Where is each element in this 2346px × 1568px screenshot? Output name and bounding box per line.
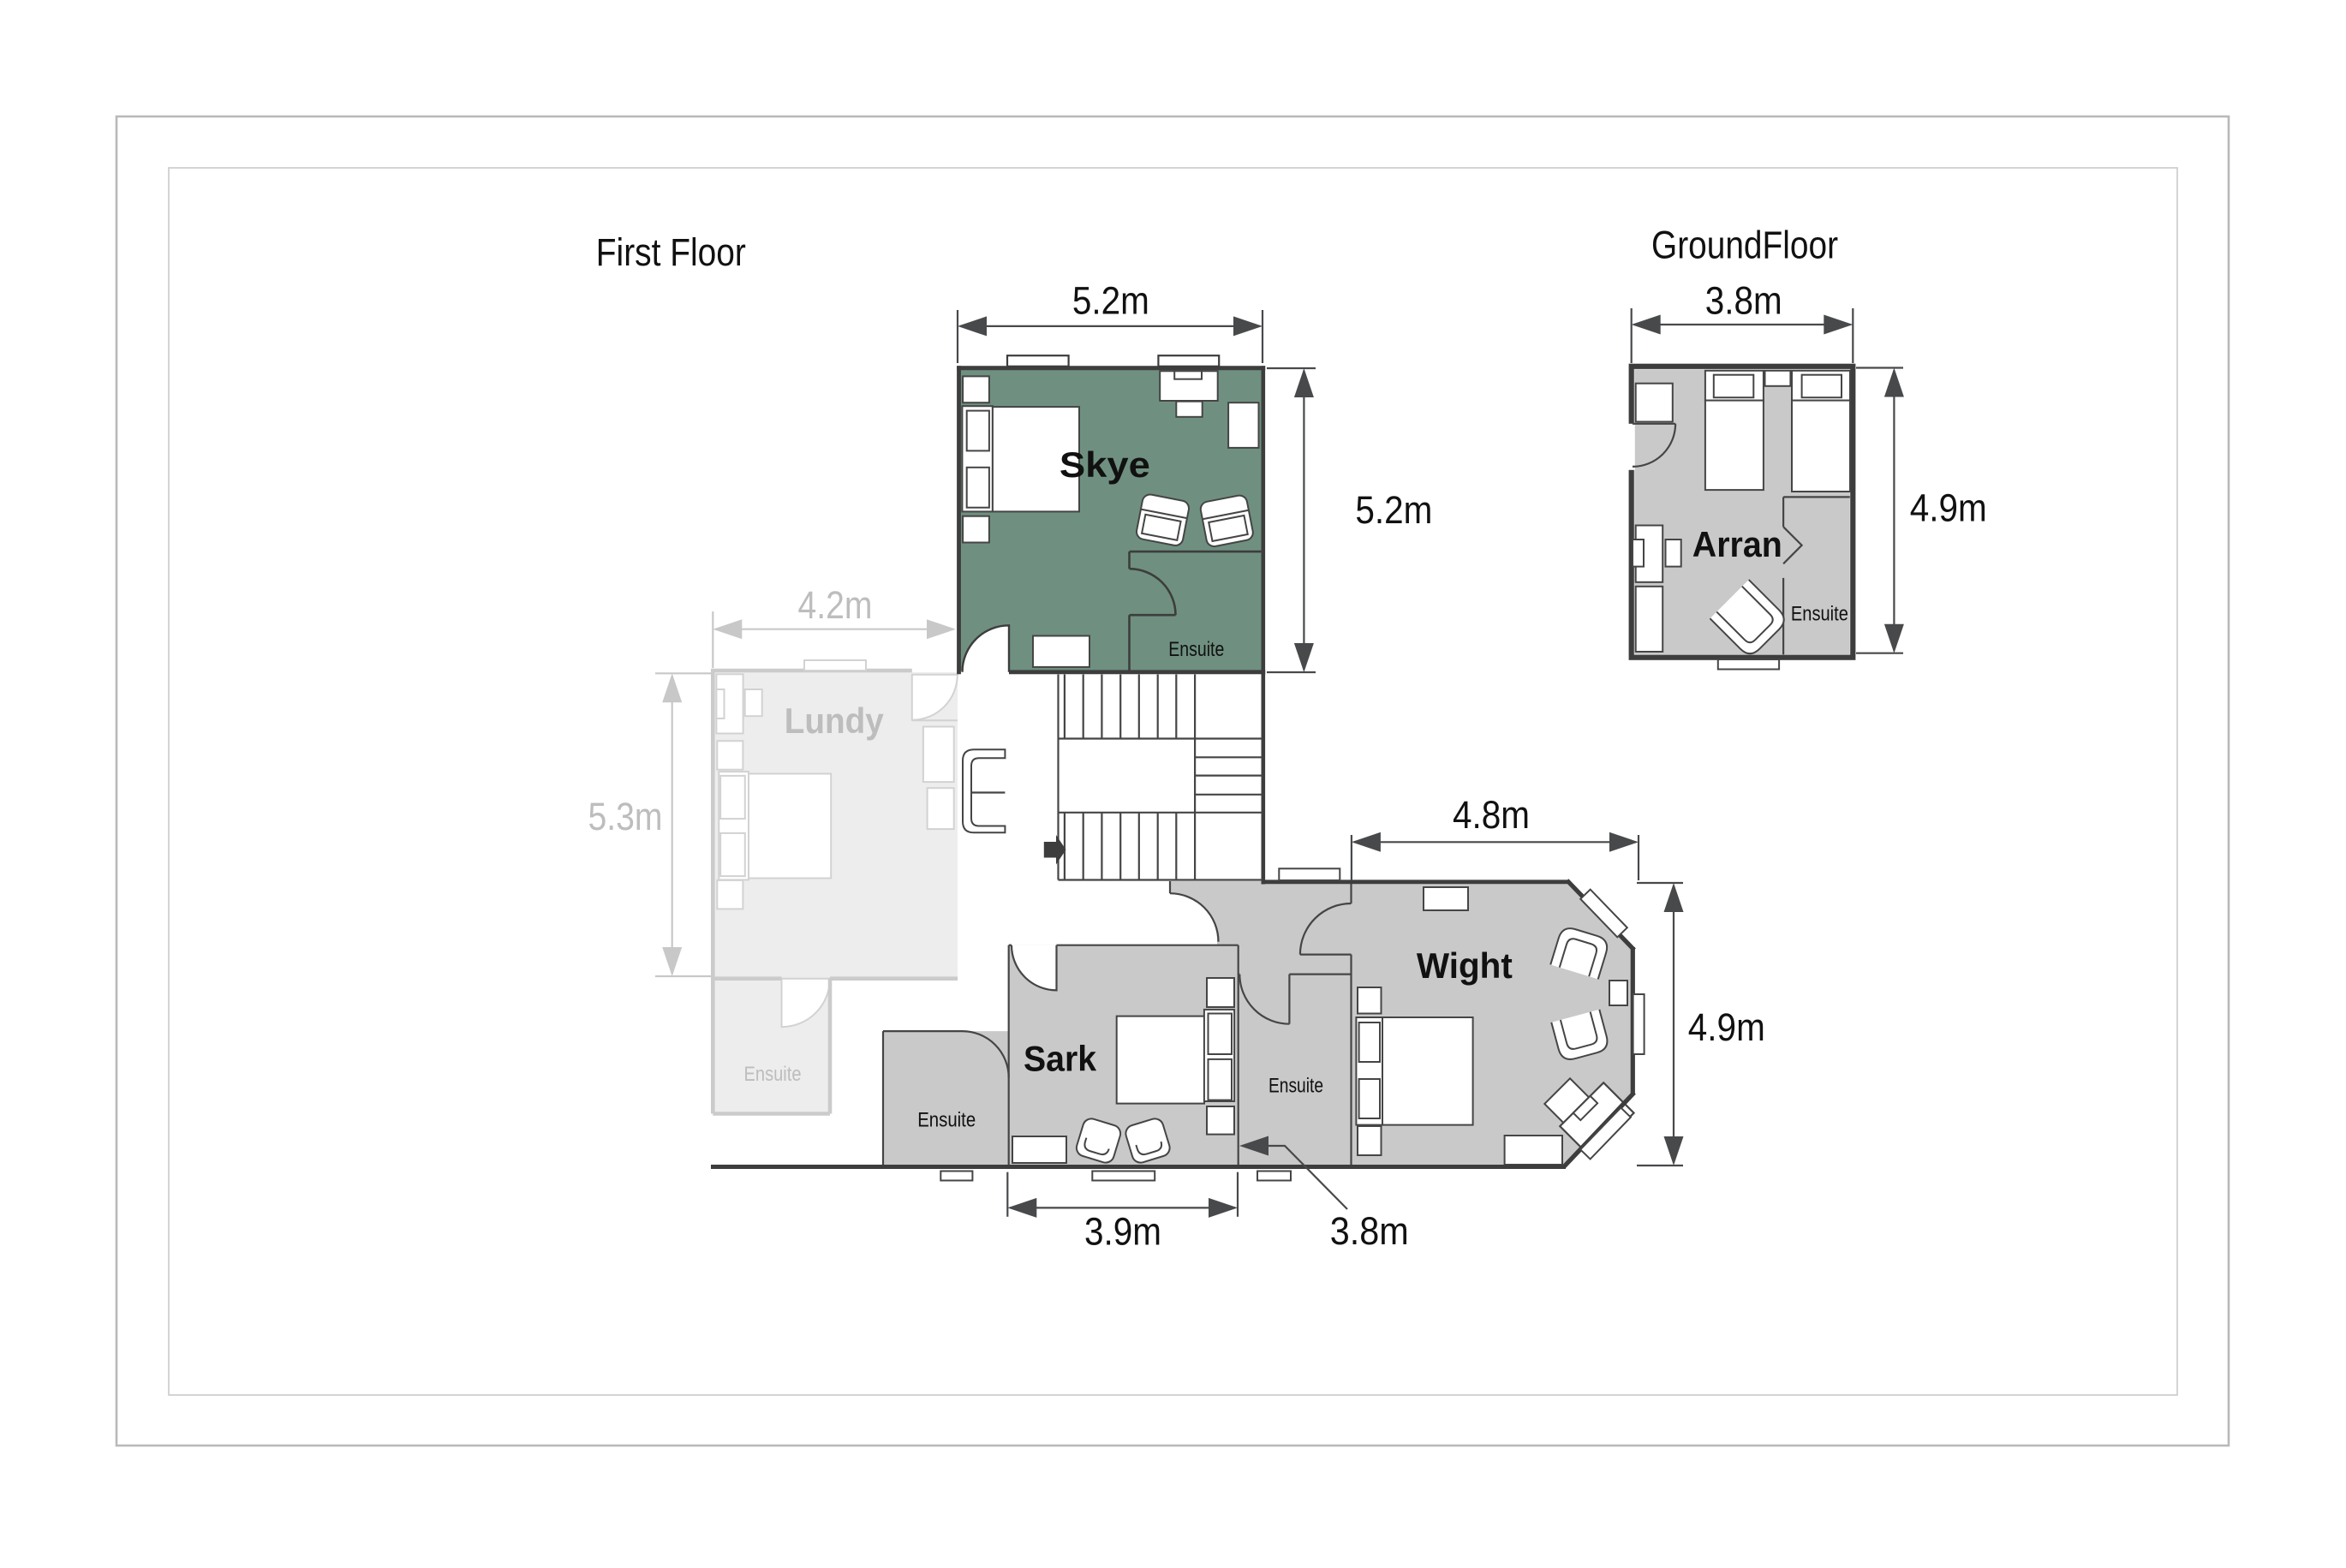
svg-text:Skye: Skye	[1060, 444, 1150, 485]
svg-text:4.2m: 4.2m	[798, 583, 873, 627]
svg-text:5.3m: 5.3m	[588, 795, 663, 838]
svg-text:Wight: Wight	[1417, 945, 1513, 986]
svg-text:Ensuite: Ensuite	[917, 1109, 976, 1132]
svg-text:5.2m: 5.2m	[1355, 488, 1432, 532]
svg-text:4.9m: 4.9m	[1688, 1005, 1765, 1049]
svg-text:Ensuite: Ensuite	[1791, 603, 1848, 626]
svg-text:Ensuite: Ensuite	[1269, 1074, 1323, 1097]
svg-text:Lundy: Lundy	[785, 701, 885, 741]
svg-text:3.8m: 3.8m	[1705, 279, 1782, 323]
svg-text:Ensuite: Ensuite	[1168, 638, 1224, 661]
svg-text:4.8m: 4.8m	[1453, 793, 1530, 837]
svg-text:3.9m: 3.9m	[1084, 1210, 1161, 1254]
svg-text:Arran: Arran	[1692, 524, 1782, 564]
svg-text:Ensuite: Ensuite	[744, 1063, 802, 1086]
svg-text:Sark: Sark	[1024, 1038, 1097, 1078]
svg-text:4.9m: 4.9m	[1910, 486, 1987, 530]
svg-text:5.2m: 5.2m	[1072, 278, 1149, 322]
svg-text:First Floor: First Floor	[596, 230, 746, 274]
svg-text:3.8m: 3.8m	[1330, 1209, 1409, 1253]
svg-text:GroundFloor: GroundFloor	[1651, 223, 1838, 266]
